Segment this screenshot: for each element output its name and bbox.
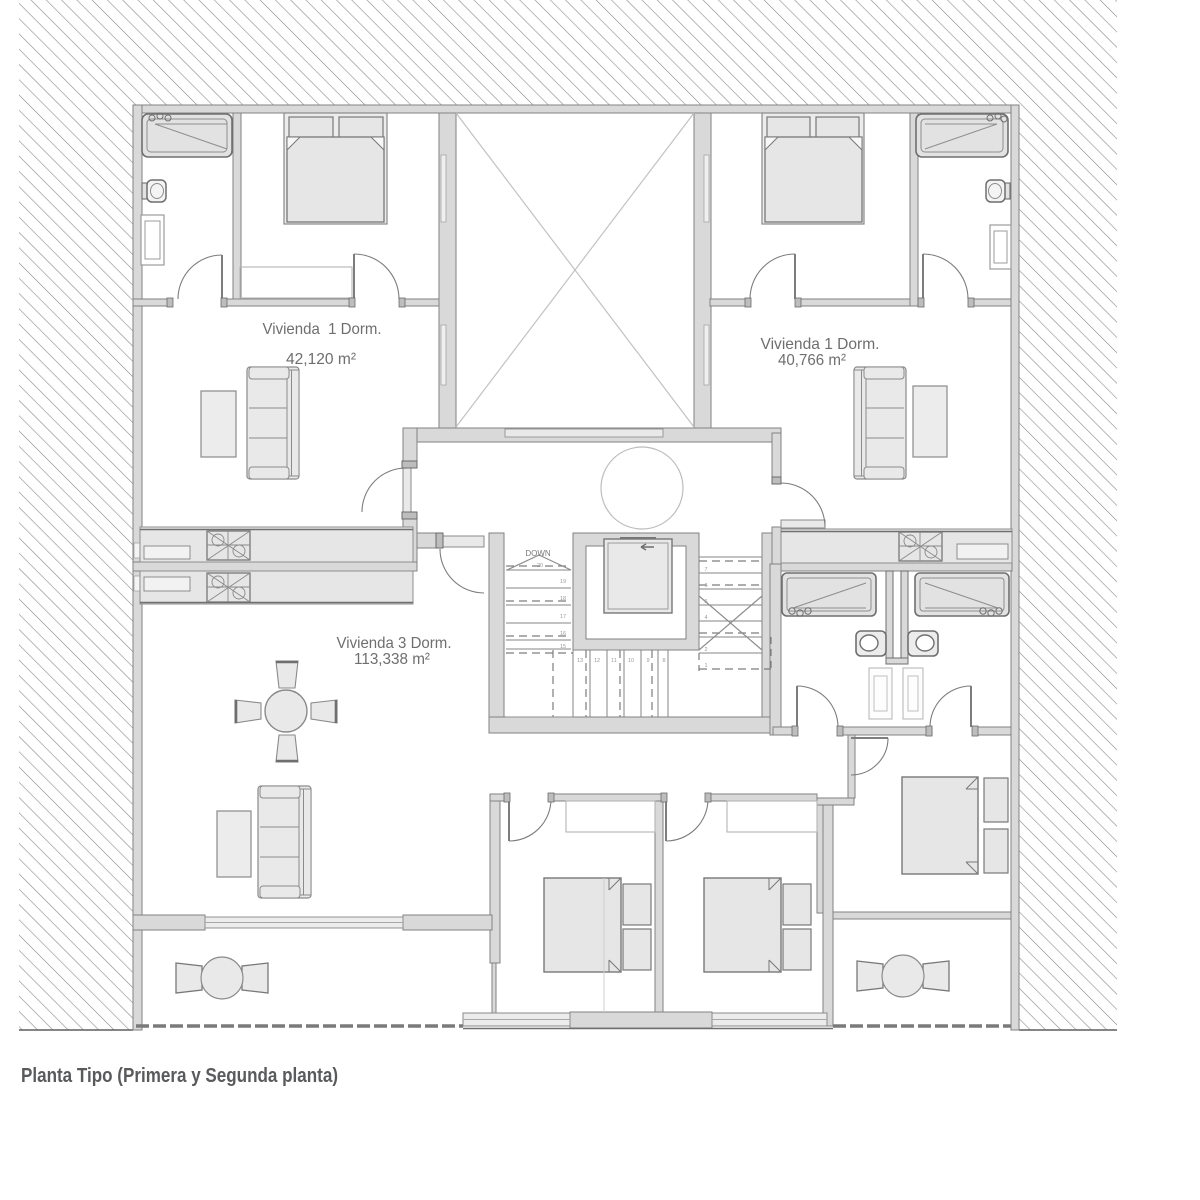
svg-text:8: 8 [662, 658, 665, 664]
svg-text:DOWN: DOWN [525, 549, 551, 558]
svg-text:Vivienda 1 Dorm.: Vivienda 1 Dorm. [263, 321, 382, 338]
svg-text:17: 17 [560, 614, 566, 620]
svg-text:Vivienda 3 Dorm.: Vivienda 3 Dorm. [337, 635, 452, 652]
svg-text:7: 7 [704, 567, 707, 573]
svg-text:15: 15 [560, 644, 566, 650]
svg-text:1: 1 [704, 663, 707, 669]
svg-text:11: 11 [611, 658, 617, 664]
svg-text:4: 4 [704, 615, 707, 621]
svg-text:2: 2 [704, 647, 707, 653]
svg-text:40,766 m²: 40,766 m² [778, 352, 847, 369]
svg-text:13: 13 [577, 658, 583, 664]
svg-text:113,338 m²: 113,338 m² [354, 651, 431, 668]
svg-text:Planta Tipo (Primera y Segunda: Planta Tipo (Primera y Segunda planta) [21, 1064, 338, 1087]
svg-text:6: 6 [704, 583, 707, 589]
svg-text:5: 5 [704, 599, 707, 605]
svg-text:20: 20 [537, 563, 543, 569]
svg-text:Vivienda 1 Dorm.: Vivienda 1 Dorm. [761, 336, 880, 353]
svg-text:9: 9 [646, 658, 649, 664]
svg-text:10: 10 [628, 658, 634, 664]
svg-text:19: 19 [560, 579, 566, 585]
svg-text:12: 12 [594, 658, 600, 664]
svg-text:16: 16 [560, 631, 566, 637]
svg-text:42,120 m²: 42,120 m² [286, 351, 357, 368]
svg-text:18: 18 [560, 596, 566, 602]
